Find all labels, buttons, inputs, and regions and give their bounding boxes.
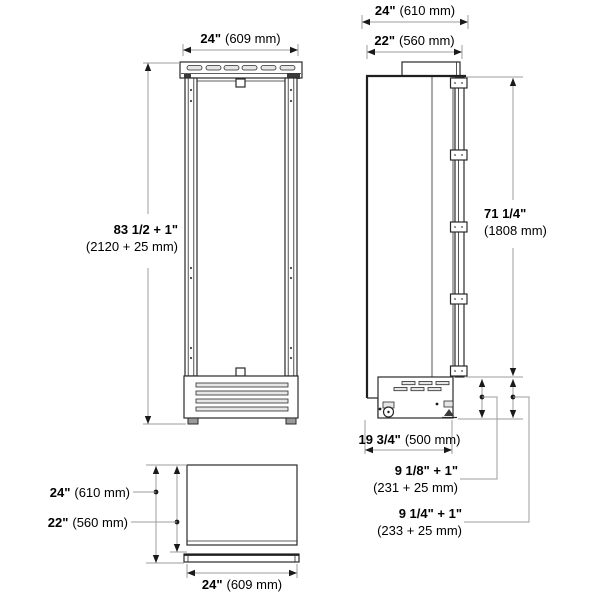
top-depth-case-label: 22"(560 mm) [48, 514, 128, 531]
rear-clearance-lower-mm: (233 + 25 mm) [377, 522, 462, 539]
top-width-inches: 24" [202, 577, 223, 592]
rear-clearance-upper-label: 9 1/8" + 1" (231 + 25 mm) [373, 462, 458, 496]
side-base-depth-inches: 19 3/4" [359, 432, 401, 447]
top-depth-overall-mm: (610 mm) [74, 485, 130, 500]
rear-clearance-upper-mm: (231 + 25 mm) [373, 479, 458, 496]
side-depth-case-mm: (560 mm) [399, 33, 455, 48]
side-depth-case-inches: 22" [374, 33, 395, 48]
side-depth-overall-inches: 24" [375, 3, 396, 18]
top-depth-overall-inches: 24" [50, 485, 71, 500]
side-view-drawing [366, 62, 467, 418]
side-door-height-mm: (1808 mm) [484, 222, 547, 239]
top-depth-case-mm: (560 mm) [72, 515, 128, 530]
front-height-mm: (2120 + 25 mm) [86, 238, 178, 255]
top-width-label: 24"(609 mm) [185, 576, 299, 593]
top-width-mm: (609 mm) [227, 577, 283, 592]
side-door-height-label: 71 1/4" (1808 mm) [484, 205, 547, 239]
top-view-drawing [184, 465, 299, 562]
front-width-mm: (609 mm) [225, 31, 281, 46]
side-base-depth-mm: (500 mm) [405, 432, 461, 447]
front-height-label: 83 1/2 + 1" (2120 + 25 mm) [86, 221, 178, 255]
side-depth-overall-mm: (610 mm) [400, 3, 456, 18]
front-view-drawing [180, 62, 302, 424]
top-depth-case-inches: 22" [48, 515, 69, 530]
rear-clearance-upper-inches: 9 1/8" + 1" [373, 462, 458, 479]
rear-clearance-lower-inches: 9 1/4" + 1" [377, 505, 462, 522]
side-depth-overall-label: 24"(610 mm) [355, 2, 475, 19]
front-width-label: 24"(609 mm) [183, 30, 298, 47]
side-door-height-inches: 71 1/4" [484, 205, 547, 222]
line-art [0, 0, 600, 600]
front-height-inches: 83 1/2 + 1" [86, 221, 178, 238]
appliance-dimension-diagram: 24"(609 mm) 24"(610 mm) 22"(560 mm) 83 1… [0, 0, 600, 600]
rear-clearance-lower-label: 9 1/4" + 1" (233 + 25 mm) [377, 505, 462, 539]
top-depth-overall-label: 24"(610 mm) [50, 484, 130, 501]
side-depth-case-label: 22"(560 mm) [357, 32, 472, 49]
side-base-depth-label: 19 3/4"(500 mm) [352, 431, 467, 448]
front-width-inches: 24" [200, 31, 221, 46]
